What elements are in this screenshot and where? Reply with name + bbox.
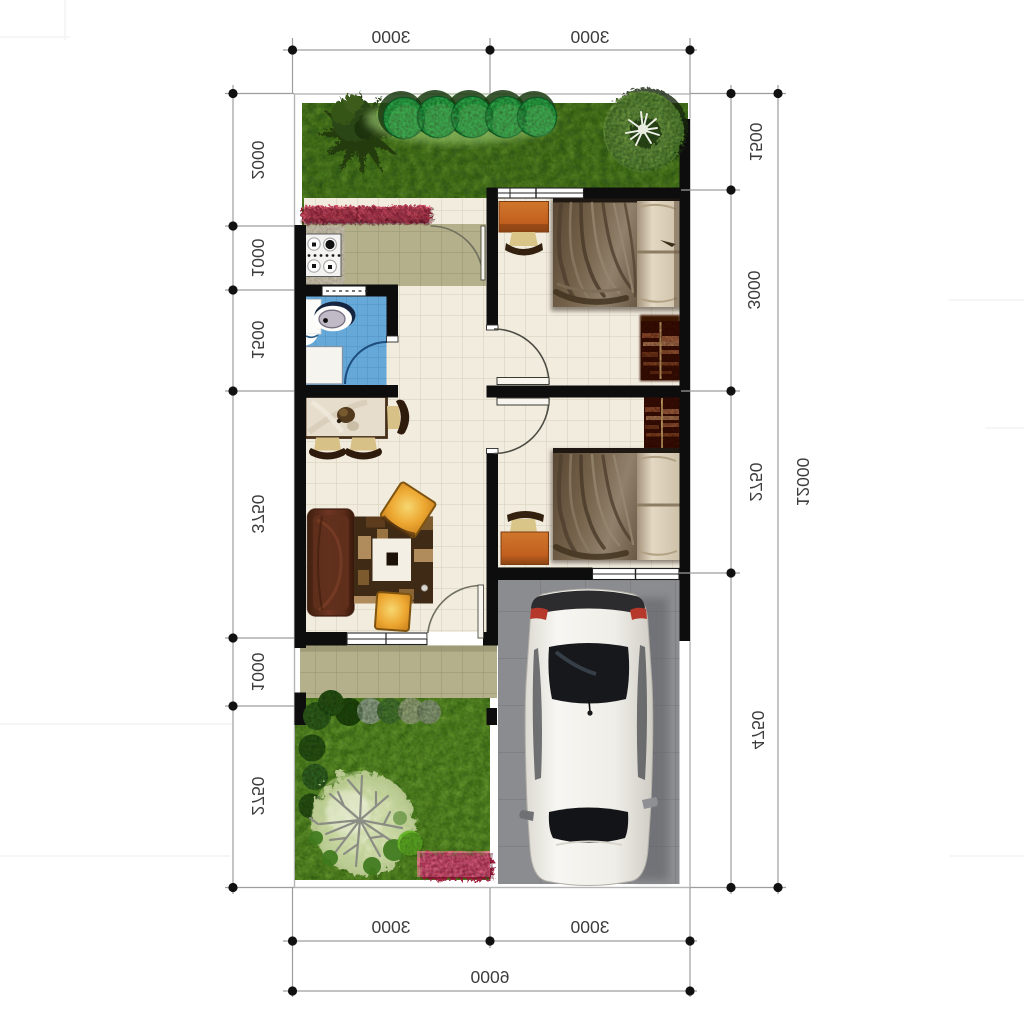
svg-text:1500: 1500 [248, 320, 268, 359]
svg-text:1500: 1500 [746, 122, 766, 161]
svg-text:1000: 1000 [248, 238, 268, 277]
svg-text:2750: 2750 [746, 462, 766, 501]
svg-text:3000: 3000 [570, 917, 609, 937]
svg-text:3000: 3000 [371, 917, 410, 937]
svg-text:12000: 12000 [793, 457, 813, 506]
svg-text:2000: 2000 [248, 140, 268, 179]
svg-text:3000: 3000 [371, 27, 410, 47]
svg-text:2750: 2750 [248, 776, 268, 815]
svg-text:3000: 3000 [744, 270, 764, 309]
svg-text:3750: 3750 [248, 494, 268, 533]
svg-text:3000: 3000 [570, 27, 609, 47]
svg-text:1000: 1000 [248, 652, 268, 691]
svg-text:4750: 4750 [748, 710, 768, 749]
svg-text:6000: 6000 [470, 967, 509, 987]
